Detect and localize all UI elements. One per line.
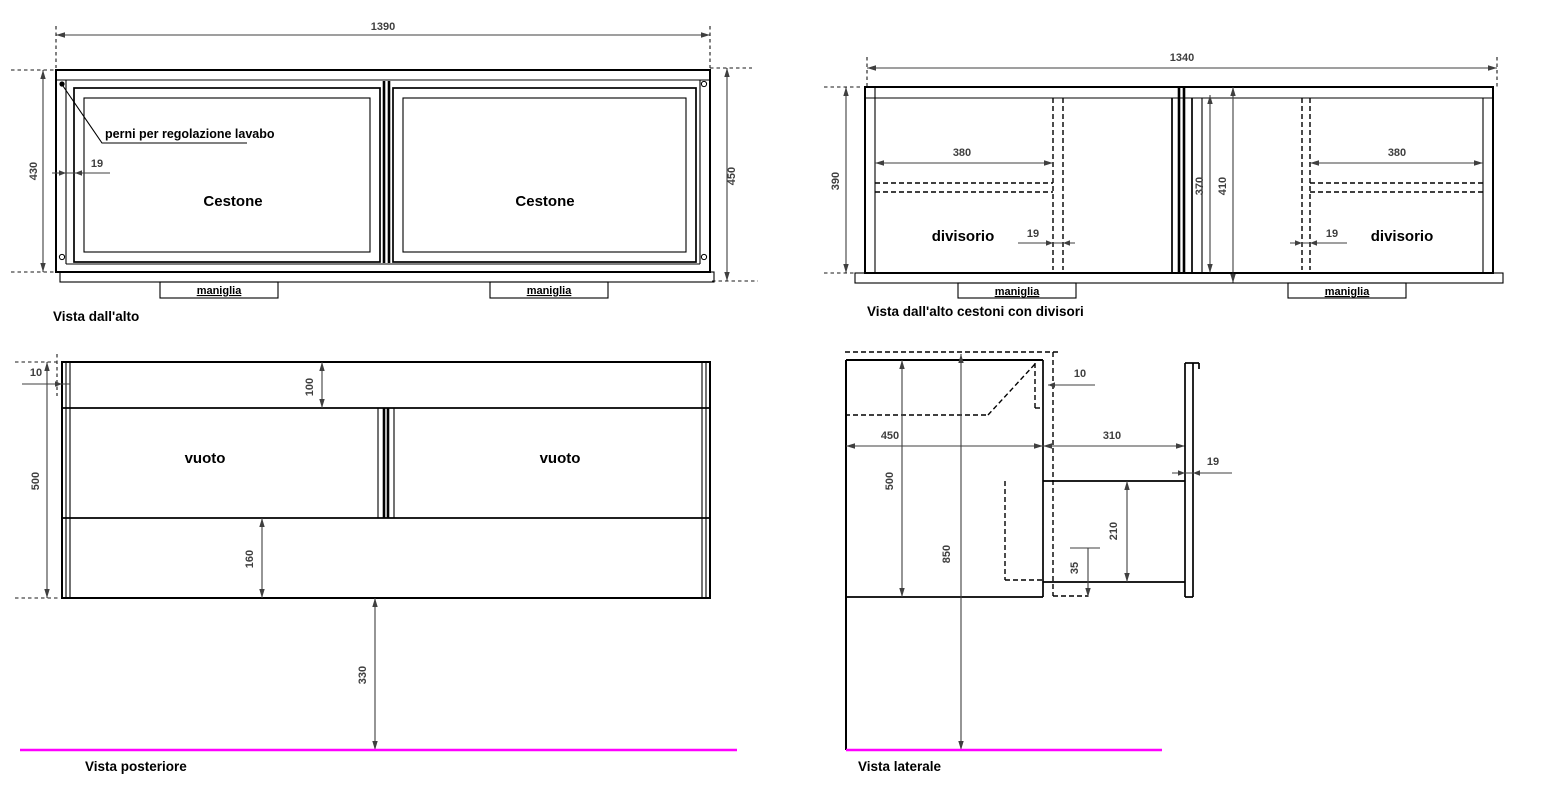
empty-label: vuoto xyxy=(185,450,226,467)
divider-label: divisorio xyxy=(1371,228,1434,245)
dim-depth-outer: 410 xyxy=(1217,87,1233,283)
dim-label-100: 100 xyxy=(304,378,316,396)
empty-label: vuoto xyxy=(540,450,581,467)
adjustment-pin-icon xyxy=(701,81,706,86)
drawer-left: Cestone xyxy=(74,88,380,262)
handle-right: maniglia xyxy=(490,282,608,298)
dim-label-10: 10 xyxy=(1074,368,1086,380)
drawer-label: Cestone xyxy=(203,193,262,210)
divider-label: divisorio xyxy=(932,228,995,245)
view-top-plan-dividers: 1340 390 380 xyxy=(824,52,1503,319)
front-edge-strip xyxy=(855,273,1503,283)
carcass-outline xyxy=(865,87,1493,273)
dim-label-380: 380 xyxy=(953,147,971,159)
dim-label-1390: 1390 xyxy=(371,21,395,33)
view-title: Vista laterale xyxy=(858,759,942,774)
dim-label-19: 19 xyxy=(1207,456,1219,468)
handle-right: maniglia xyxy=(1288,283,1406,298)
handle-label: maniglia xyxy=(197,285,243,297)
handle-label: maniglia xyxy=(527,285,573,297)
dim-overall-width: 1390 xyxy=(56,21,710,68)
dim-drawer-front-height: 210 xyxy=(1108,481,1127,582)
dim-overall-width: 1340 xyxy=(867,52,1497,89)
vanity-technical-drawing: 1390 Cestone Cestone xyxy=(0,0,1552,799)
dim-label-430: 430 xyxy=(28,162,40,180)
dim-label-310: 310 xyxy=(1103,430,1121,442)
dim-front-clearance: 310 xyxy=(1043,430,1185,446)
technical-drawing-page: 1390 Cestone Cestone xyxy=(0,0,1552,799)
dim-bottom-rail-height: 160 xyxy=(244,518,262,598)
dim-label-1340: 1340 xyxy=(1170,52,1194,64)
dim-height-from-floor: 330 xyxy=(357,598,375,750)
note-leader: perni per regolazione lavabo xyxy=(63,86,275,143)
dim-top-rail-height: 100 xyxy=(304,362,322,408)
dim-depth-left: 390 xyxy=(824,87,862,273)
handle-label: maniglia xyxy=(1325,286,1371,298)
dim-divider-thickness-left: 19 xyxy=(1018,228,1075,246)
view-top-plan: 1390 Cestone Cestone xyxy=(11,21,758,324)
dim-label-19: 19 xyxy=(91,158,103,170)
dim-divider-offset-left: 380 xyxy=(875,147,1053,163)
dim-label-380: 380 xyxy=(1388,147,1406,159)
dim-label-500: 500 xyxy=(30,472,42,490)
front-edge-strip xyxy=(60,272,714,282)
view-rear: vuoto vuoto 10 500 100 160 330 xyxy=(15,354,737,774)
dim-panel-thickness: 19 xyxy=(1172,456,1232,476)
dim-depth-inner: 430 xyxy=(11,70,54,272)
dim-label-19: 19 xyxy=(1027,228,1039,240)
view-title: Vista posteriore xyxy=(85,759,187,774)
adjustment-pin-icon xyxy=(701,254,706,259)
view-side: 10 450 310 500 850 xyxy=(845,352,1232,774)
dim-label-850: 850 xyxy=(941,545,953,563)
dim-label-210: 210 xyxy=(1108,522,1120,540)
dim-label-330: 330 xyxy=(357,666,369,684)
dim-label-35: 35 xyxy=(1069,562,1081,574)
dim-panel-thickness: 19 xyxy=(52,158,110,176)
dim-label-370: 370 xyxy=(1194,177,1206,195)
worktop-hidden-outline xyxy=(845,352,1088,596)
dim-label-160: 160 xyxy=(244,550,256,568)
dim-label-450: 450 xyxy=(726,167,738,185)
dim-divider-thickness-right: 19 xyxy=(1290,228,1347,246)
view-title: Vista dall'alto xyxy=(53,309,139,324)
adjustment-pin-icon xyxy=(59,81,64,86)
handle-label: maniglia xyxy=(995,286,1041,298)
carcass-outline xyxy=(62,362,710,598)
dim-label-390: 390 xyxy=(830,172,842,190)
dim-label-10: 10 xyxy=(30,367,42,379)
wall-panel xyxy=(1185,363,1199,597)
adjustment-pin-icon xyxy=(59,254,64,259)
dim-label-450: 450 xyxy=(881,430,899,442)
dim-cabinet-height: 500 xyxy=(884,360,902,597)
dim-bottom-gap: 35 xyxy=(1069,548,1100,597)
dim-worktop-height: 850 xyxy=(941,354,961,750)
center-divider xyxy=(384,81,389,263)
handle-left: maniglia xyxy=(160,282,278,298)
dim-label-410: 410 xyxy=(1217,177,1229,195)
drawer-front-side xyxy=(1005,481,1185,582)
drawer-right: Cestone xyxy=(393,88,696,262)
dim-label-500: 500 xyxy=(884,472,896,490)
dim-divider-offset-right: 380 xyxy=(1310,147,1483,163)
drawer-label: Cestone xyxy=(515,193,574,210)
view-title: Vista dall'alto cestoni con divisori xyxy=(867,304,1084,319)
dim-top-gap: 10 xyxy=(1048,368,1095,388)
handle-left: maniglia xyxy=(958,283,1076,298)
dim-label-19: 19 xyxy=(1326,228,1338,240)
dim-depth-outer: 450 xyxy=(710,68,758,281)
dim-carcass-height: 500 xyxy=(15,362,58,598)
dim-cabinet-depth: 450 xyxy=(846,430,1043,446)
note-label: perni per regolazione lavabo xyxy=(105,127,275,141)
